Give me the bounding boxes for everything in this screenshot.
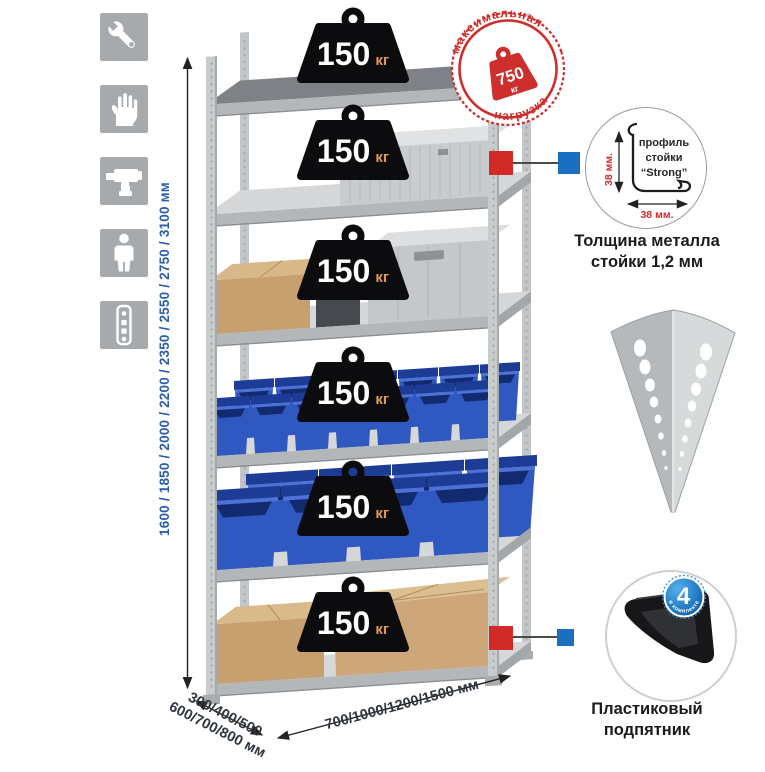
max-load-stamp: максимальная нагрузка 750 кг [447, 8, 569, 130]
shelf-load-badge: 150кг [301, 11, 405, 79]
plastic-foot-detail: 4 в комплекте [605, 570, 737, 702]
drill-tile [100, 157, 148, 205]
person-tile [100, 229, 148, 277]
svg-text:стойки: стойки [645, 152, 682, 164]
wrench-icon [100, 13, 148, 61]
tools-required-tile [100, 13, 148, 61]
callout-marker-blue-top [558, 152, 580, 174]
svg-text:профиль: профиль [639, 137, 689, 149]
metal-thickness-caption: Толщина металла стойки 1,2 мм [552, 231, 742, 272]
gloves-icon [100, 85, 148, 133]
svg-text:38 мм.: 38 мм. [603, 153, 615, 186]
post-profile-detail: 38 мм. 38 мм. профиль стойки “Strong” [585, 107, 707, 229]
drill-icon [100, 157, 148, 205]
callout-marker-red-top [489, 151, 513, 175]
callout-marker-blue-bottom [557, 629, 574, 646]
perforated-strip-icon [100, 301, 148, 349]
svg-text:38 мм.: 38 мм. [640, 209, 673, 221]
callout-line-bottom [513, 636, 557, 638]
svg-text:“Strong”: “Strong” [641, 167, 687, 179]
callout-marker-red-bottom [489, 626, 513, 650]
included-count-badge: 4 в комплекте [661, 574, 707, 620]
plastic-foot-caption: Пластиковый подпятник [552, 699, 742, 740]
post-strip-tile [100, 301, 148, 349]
svg-text:4: 4 [677, 583, 691, 610]
shelf-load-badge: 150кг [301, 350, 405, 418]
callout-line-top [513, 162, 558, 164]
product-infographic: { "colors": { "accent_red": "#cd2f2c", "… [0, 0, 765, 765]
height-dimension-label: 1600 / 1850 / 2000 / 2200 / 2350 / 2550 … [157, 182, 172, 536]
left-icon-rail [100, 13, 148, 373]
corner-post-image [598, 302, 748, 517]
person-icon [100, 229, 148, 277]
shelf-load-badge: 150кг [301, 108, 405, 176]
gloves-tile [100, 85, 148, 133]
